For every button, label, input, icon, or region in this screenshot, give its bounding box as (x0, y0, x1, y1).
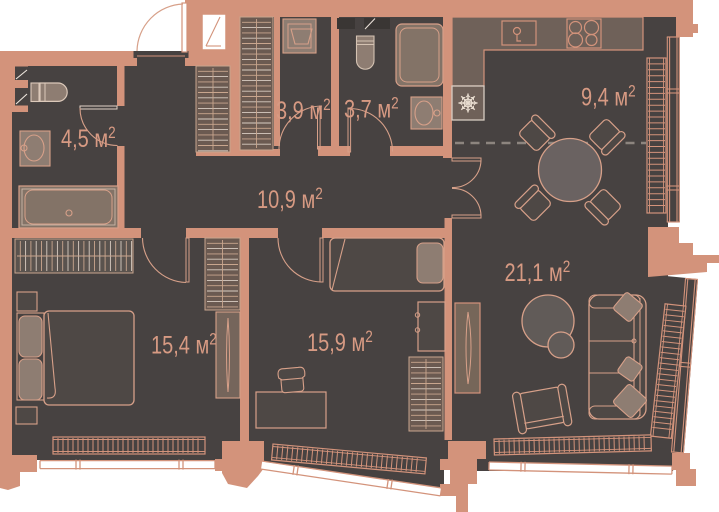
svg-text:9,4 м2: 9,4 м2 (581, 82, 636, 111)
svg-text:3,7 м2: 3,7 м2 (344, 94, 399, 123)
svg-text:4,5 м2: 4,5 м2 (61, 124, 116, 153)
svg-text:10,9 м2: 10,9 м2 (257, 185, 323, 214)
svg-text:3,9 м2: 3,9 м2 (276, 96, 331, 125)
svg-text:21,1 м2: 21,1 м2 (505, 258, 571, 287)
svg-text:15,9 м2: 15,9 м2 (307, 328, 373, 357)
svg-text:15,4 м2: 15,4 м2 (151, 330, 217, 359)
